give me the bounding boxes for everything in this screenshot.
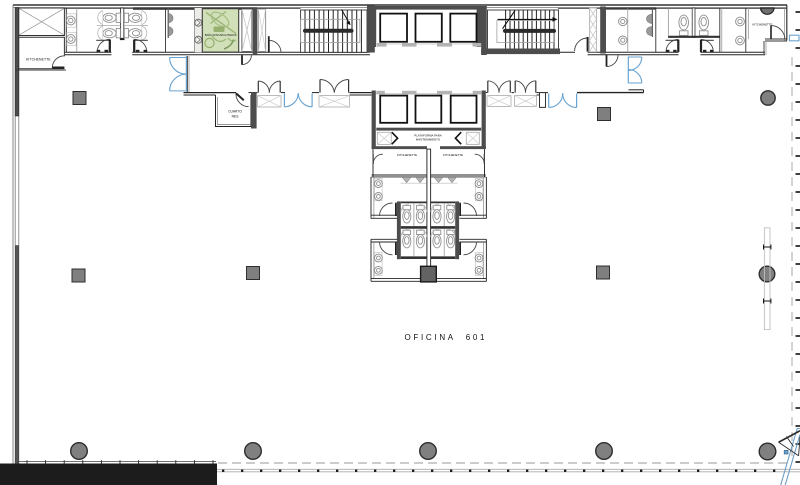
svg-text:KITCHENETTE: KITCHENETTE [397, 153, 417, 157]
svg-text:KITCHENETTE: KITCHENETTE [26, 57, 51, 61]
svg-text:MANTENIMIENTO: MANTENIMIENTO [416, 138, 441, 142]
svg-text:OFICINA 601: OFICINA 601 [405, 333, 488, 342]
svg-text:RES: RES [232, 115, 240, 119]
svg-text:KITCHENETTE: KITCHENETTE [443, 153, 463, 157]
svg-text:CUARTO: CUARTO [228, 110, 242, 114]
svg-text:KITCHENETTE: KITCHENETTE [752, 23, 772, 27]
